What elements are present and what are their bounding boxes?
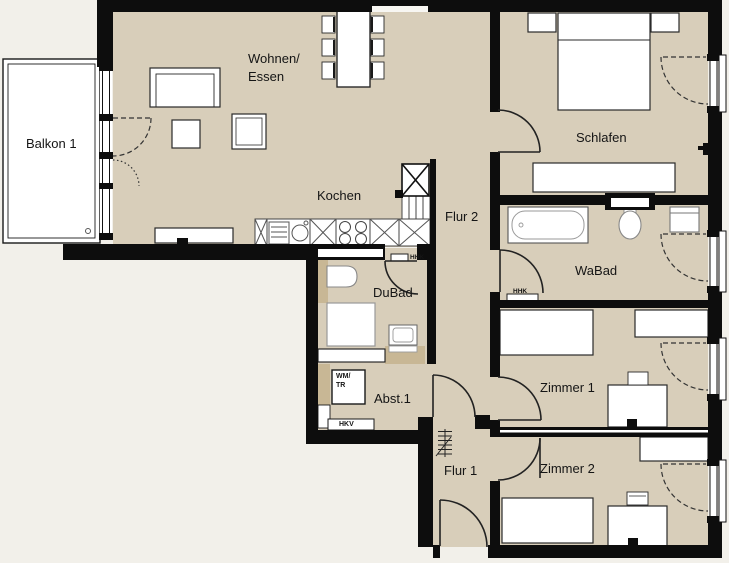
washbasin-icon <box>327 266 357 287</box>
shaft-icon <box>402 164 429 196</box>
room-label-flur2: Flur 2 <box>445 209 478 224</box>
nightstand <box>528 13 556 32</box>
shower-icon <box>327 303 375 346</box>
double-bed <box>558 13 650 110</box>
label-hhk-dubad: HHK <box>410 254 424 261</box>
room-label-zimmer2: Zimmer 2 <box>540 461 595 476</box>
radiator-icon <box>507 294 538 301</box>
room-label-essen: Essen <box>248 69 284 84</box>
balcony <box>3 59 100 243</box>
label-hkv: HKV <box>339 421 354 429</box>
wardrobe <box>640 437 708 461</box>
room-label-kochen: Kochen <box>317 188 361 203</box>
chair <box>628 372 648 385</box>
floor-plan: Balkon 1 Wohnen/ Essen Kochen Flur 2 Sch… <box>0 0 729 563</box>
window-schlafen <box>707 54 726 113</box>
floor-door-gap-z1 <box>490 377 500 420</box>
wardrobe <box>635 310 708 337</box>
bed <box>500 310 593 355</box>
side-table <box>232 114 266 149</box>
shelf <box>318 349 385 362</box>
floor-door-gap-z2 <box>490 437 500 481</box>
room-label-wohnen: Wohnen/ <box>248 51 300 66</box>
bed <box>502 498 593 543</box>
label-wm: WM/ <box>336 373 350 381</box>
floor-plan-drawing <box>0 0 729 563</box>
washbasin-icon <box>619 211 641 239</box>
armchair <box>172 120 200 148</box>
room-label-schlafen: Schlafen <box>576 130 627 145</box>
window-zimmer1 <box>707 337 726 401</box>
tv-icon <box>177 238 188 245</box>
desk <box>608 385 667 427</box>
room-label-zimmer1: Zimmer 1 <box>540 380 595 395</box>
room-label-balkon: Balkon 1 <box>26 136 77 151</box>
dresser <box>533 163 675 192</box>
radiator-icon <box>391 254 408 261</box>
balcony-outer-wall <box>3 59 100 243</box>
room-label-abst: Abst.1 <box>374 391 411 406</box>
window-balcony-front <box>99 64 113 240</box>
room-label-wabad: WaBad <box>575 263 617 278</box>
wall-radiator-mark <box>698 146 703 150</box>
chair <box>627 492 648 505</box>
room-label-flur1: Flur 1 <box>444 463 477 478</box>
nightstand <box>651 13 679 32</box>
desk-chair-mark <box>628 538 638 546</box>
dining-table <box>337 10 370 87</box>
window-zimmer2 <box>707 459 726 523</box>
floor-door-gap-schlafen <box>490 112 500 152</box>
washer-icon <box>670 207 699 232</box>
room-label-dubad: DuBad <box>373 285 413 300</box>
window-wabad <box>707 230 726 293</box>
label-hhk-wabad: HHK <box>513 288 527 295</box>
sideboard <box>155 228 233 243</box>
desk-chair-mark <box>627 419 637 427</box>
wall-radiator-mark <box>703 143 711 155</box>
label-tr: TR <box>336 382 345 390</box>
floor-door-gap-wabad <box>490 250 500 292</box>
